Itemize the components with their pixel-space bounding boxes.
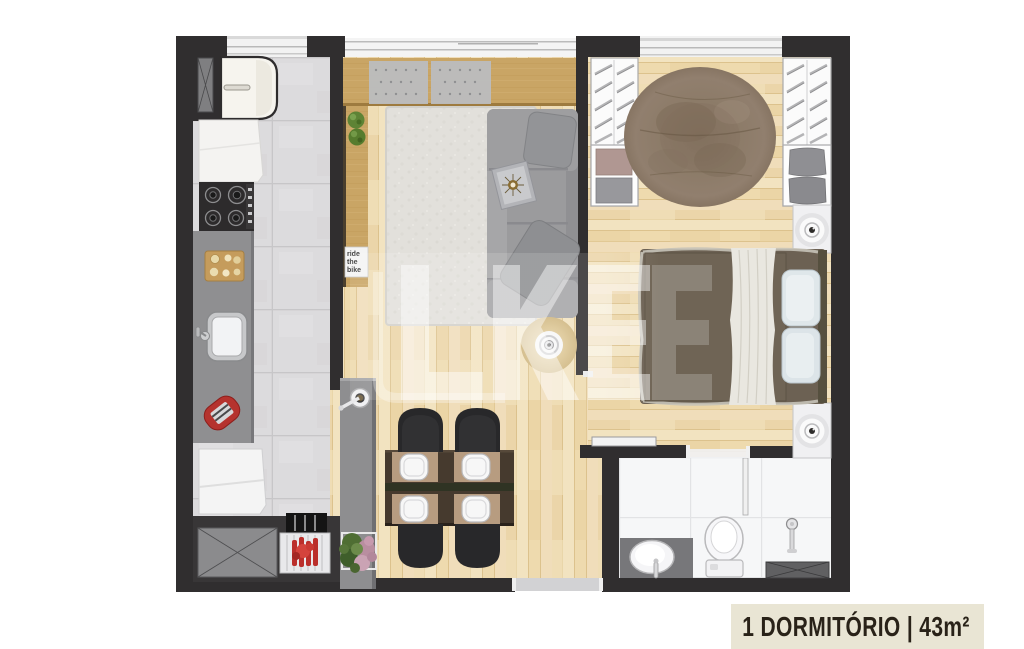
svg-text:1 DORMITÓRIO | 43m²: 1 DORMITÓRIO | 43m²	[742, 611, 970, 643]
